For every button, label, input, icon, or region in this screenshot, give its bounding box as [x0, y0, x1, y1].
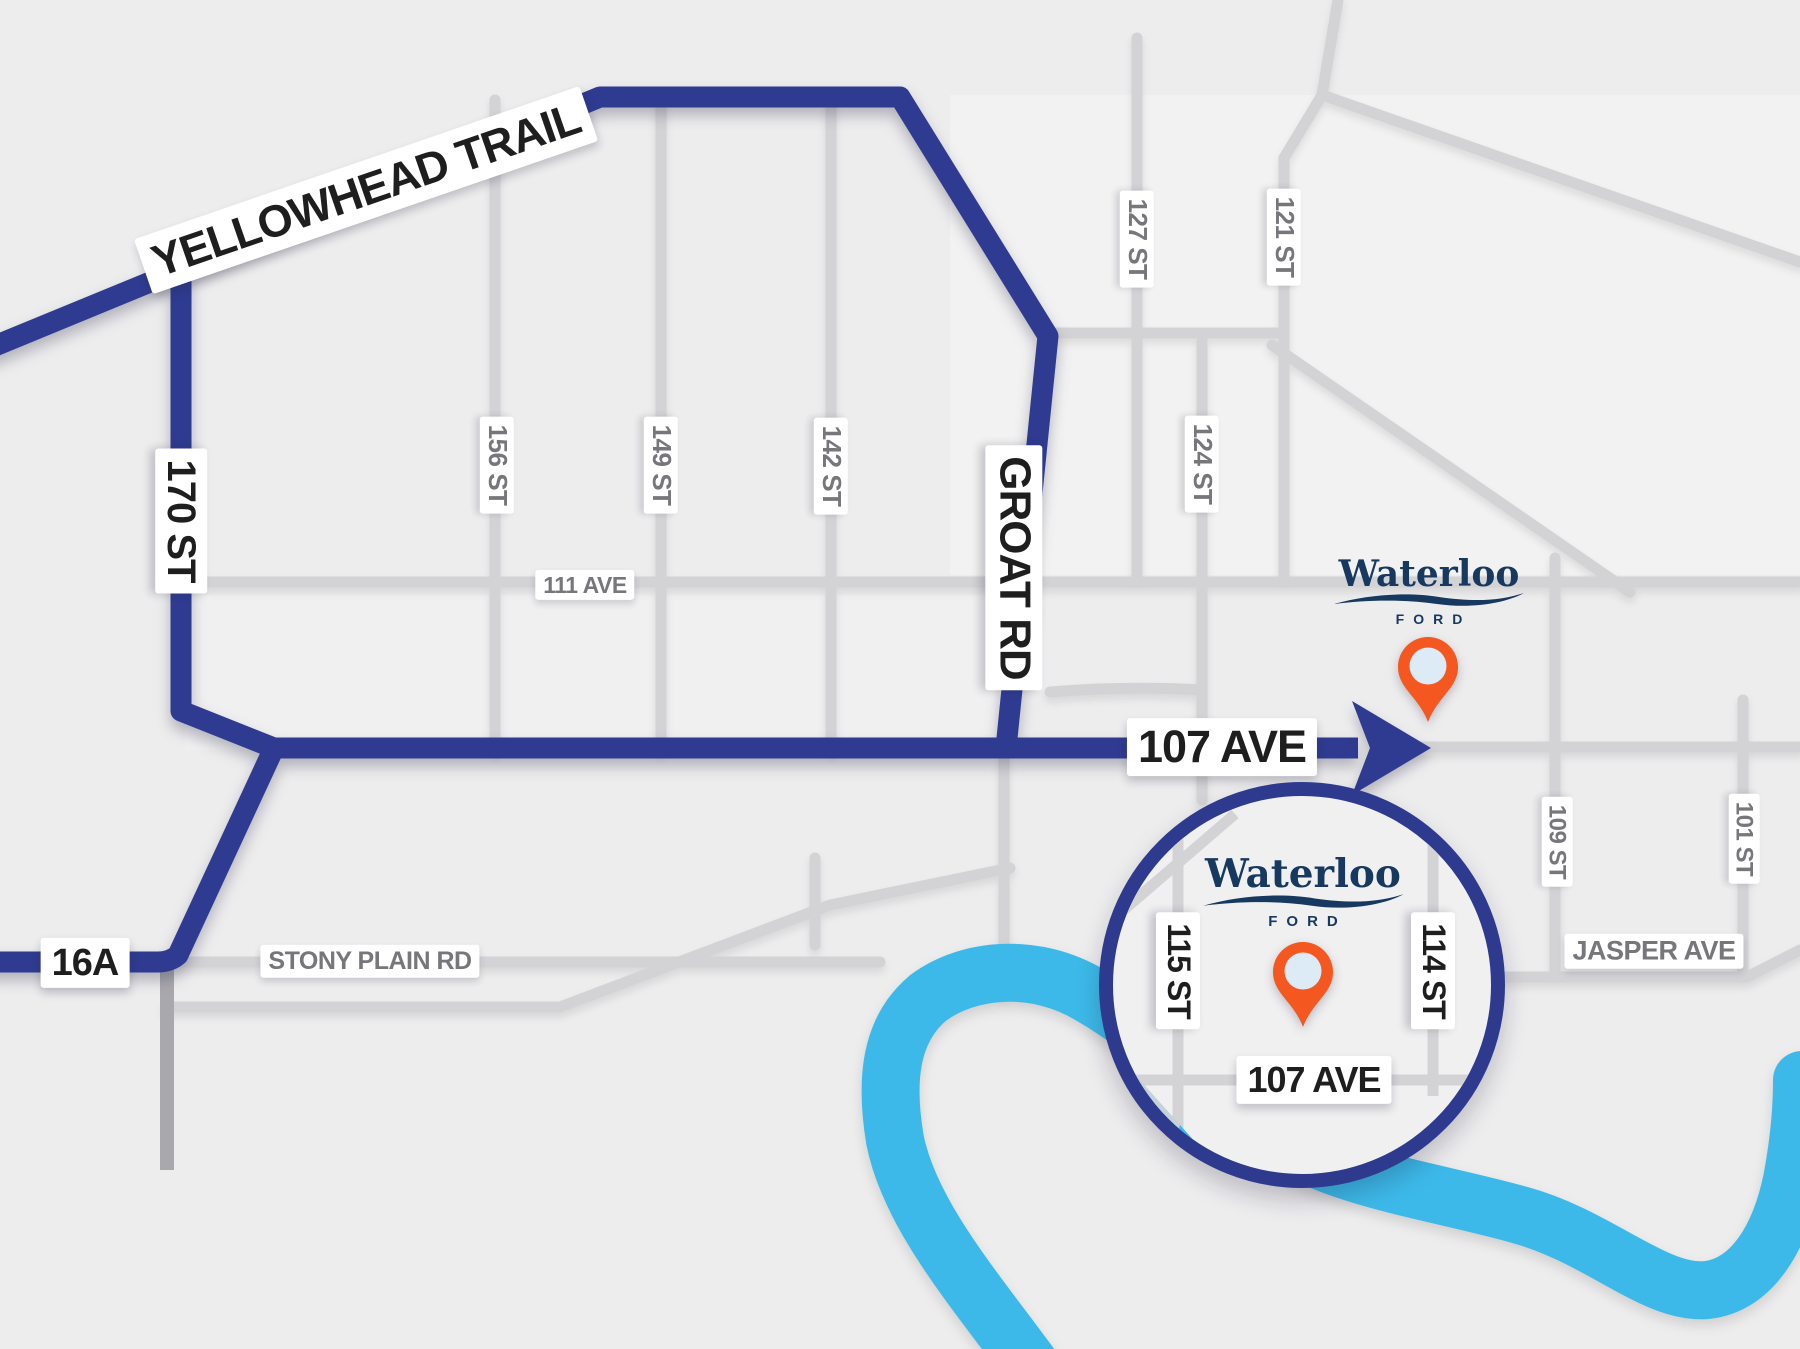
waterloo-ford-logo: Waterloo FORD [1289, 556, 1569, 627]
logo-brand-text: FORD [1289, 611, 1569, 627]
road-label-jasper-ave: JASPER AVE [1564, 934, 1743, 969]
road-label-109-st: 109 ST [1541, 797, 1572, 887]
road-label-170-st: 170 ST [155, 449, 207, 594]
inset-road-label-107-ave: 107 AVE [1236, 1056, 1391, 1104]
location-pin-icon [1397, 637, 1459, 723]
road-label-124-st: 124 ST [1185, 416, 1219, 513]
logo-wordmark: Waterloo [1289, 556, 1569, 594]
directions-map: YELLOWHEAD TRAIL 170 ST GROAT RD 107 AVE… [0, 0, 1800, 1349]
road-label-156-st: 156 ST [480, 417, 514, 514]
road-cross-street [1050, 688, 1202, 692]
detail-inset-circle: Waterloo FORD 115 ST 114 ST 107 AVE [1099, 782, 1505, 1188]
inset-logo-wordmark: Waterloo [1163, 854, 1443, 895]
road-label-groat-rd: GROAT RD [986, 445, 1043, 690]
road-label-111-ave: 111 AVE [535, 570, 634, 600]
inset-road-label-114-st: 114 ST [1411, 912, 1455, 1029]
road-label-127-st: 127 ST [1120, 191, 1154, 288]
road-label-121-st: 121 ST [1267, 189, 1301, 286]
road-label-16a: 16A [41, 938, 130, 988]
inset-road-label-115-st: 115 ST [1156, 912, 1200, 1029]
road-label-107-ave: 107 AVE [1127, 718, 1317, 776]
map-block-highlight [185, 595, 995, 750]
road-label-101-st: 101 ST [1728, 794, 1759, 884]
inset-waterloo-ford-logo: Waterloo FORD [1163, 854, 1443, 930]
road-label-149-st: 149 ST [644, 417, 678, 514]
inset-location-pin-icon [1272, 942, 1334, 1028]
inset-logo-brand-text: FORD [1163, 913, 1443, 930]
road-label-142-st: 142 ST [814, 418, 848, 515]
road-label-stony-plain-rd: STONY PLAIN RD [260, 945, 479, 978]
